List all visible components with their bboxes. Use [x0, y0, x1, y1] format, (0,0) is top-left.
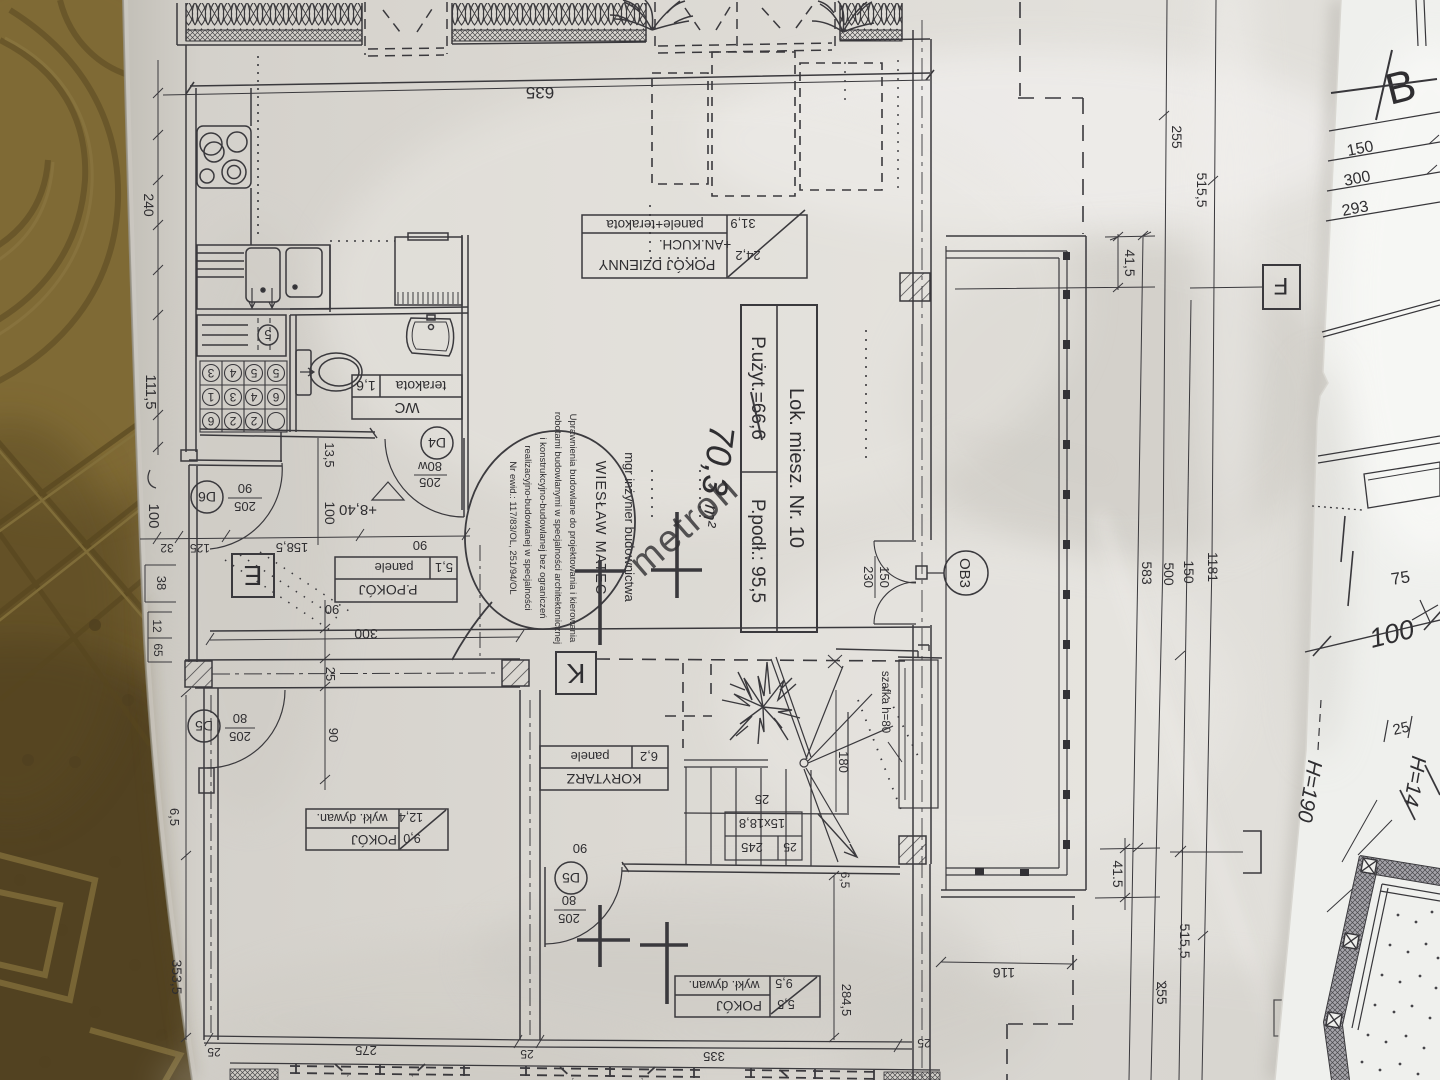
svg-text:111,5: 111,5 — [142, 374, 159, 409]
svg-text:9,0: 9,0 — [403, 831, 420, 845]
svg-text:583: 583 — [1139, 561, 1155, 585]
svg-text:terakota: terakota — [395, 378, 446, 394]
svg-text:90: 90 — [573, 841, 587, 856]
svg-text:Lok. miesz. Nr. 10: Lok. miesz. Nr. 10 — [785, 388, 807, 548]
svg-text:D5: D5 — [562, 870, 580, 886]
svg-text:K: K — [566, 658, 585, 689]
svg-text:5,1: 5,1 — [435, 560, 453, 575]
svg-text:515,5: 515,5 — [1194, 172, 1210, 207]
svg-text:300: 300 — [354, 626, 378, 642]
svg-text:275: 275 — [355, 1043, 377, 1058]
svg-text:245: 245 — [741, 840, 763, 855]
svg-text:90: 90 — [325, 602, 339, 617]
svg-text:15x18,8: 15x18,8 — [739, 816, 785, 831]
svg-text:25: 25 — [783, 840, 797, 854]
svg-text:WC: WC — [394, 399, 419, 416]
svg-text:180: 180 — [836, 751, 851, 773]
svg-text:32: 32 — [160, 541, 174, 555]
svg-text:116: 116 — [993, 965, 1016, 981]
svg-text:255: 255 — [1169, 125, 1185, 149]
svg-text:9,5: 9,5 — [775, 976, 792, 990]
svg-text:31,9: 31,9 — [730, 216, 755, 231]
svg-text:szafka h=80: szafka h=80 — [879, 671, 891, 733]
svg-text:6: 6 — [272, 390, 279, 404]
svg-text:25: 25 — [207, 1045, 221, 1059]
svg-text:240: 240 — [141, 193, 157, 217]
svg-text:230: 230 — [861, 566, 876, 588]
svg-text:158,5: 158,5 — [276, 540, 309, 555]
svg-text:635: 635 — [526, 83, 554, 102]
svg-text:41,5: 41,5 — [1122, 249, 1138, 276]
svg-text:3: 3 — [207, 366, 214, 380]
svg-text:12,4: 12,4 — [399, 810, 423, 824]
svg-text:6,5: 6,5 — [838, 872, 852, 889]
svg-text:E: E — [244, 560, 263, 591]
svg-text:90: 90 — [238, 481, 252, 496]
svg-text:500: 500 — [1161, 562, 1177, 586]
svg-text:80: 80 — [233, 711, 247, 726]
svg-text:Uprawnienia budowlane do proje: Uprawnienia budowlane do projektowania i… — [567, 414, 578, 643]
svg-text:POKÓJ: POKÓJ — [716, 998, 762, 1013]
svg-text:P.podł.: 95,5: P.podł.: 95,5 — [747, 499, 768, 603]
svg-text:255: 255 — [1154, 981, 1170, 1005]
svg-text:6,5: 6,5 — [167, 808, 182, 826]
svg-text:5,5: 5,5 — [777, 997, 794, 1011]
svg-text:90: 90 — [413, 538, 427, 553]
svg-text:wykł. dywan.: wykł. dywan. — [317, 811, 389, 825]
svg-text:D4: D4 — [428, 435, 446, 451]
svg-text:25: 25 — [755, 792, 769, 807]
svg-text:205: 205 — [558, 911, 580, 926]
svg-text:panele+terakota: panele+terakota — [606, 217, 704, 232]
svg-text:3: 3 — [229, 390, 236, 404]
svg-text:OB3: OB3 — [956, 558, 973, 588]
svg-text:5: 5 — [272, 366, 279, 380]
svg-text:i konstrukcyjno-budowlanej bez: i konstrukcyjno-budowlanej bez ogranicze… — [537, 437, 548, 618]
svg-text:5: 5 — [250, 366, 257, 380]
svg-text:2: 2 — [250, 414, 257, 428]
svg-text:38: 38 — [154, 576, 169, 590]
svg-text:6: 6 — [207, 414, 214, 428]
svg-text:4: 4 — [250, 390, 257, 404]
svg-text:515,5: 515,5 — [1177, 923, 1193, 958]
svg-text:90: 90 — [326, 728, 341, 742]
svg-text:D6: D6 — [198, 489, 216, 505]
svg-text:1181: 1181 — [1205, 552, 1221, 582]
svg-text:80w: 80w — [417, 459, 441, 474]
svg-text:205: 205 — [234, 499, 256, 514]
svg-text:F: F — [1274, 272, 1289, 299]
svg-text:24,2: 24,2 — [735, 248, 760, 263]
svg-text:100: 100 — [145, 503, 162, 528]
svg-text:205: 205 — [419, 475, 441, 490]
svg-text:125: 125 — [190, 541, 210, 555]
svg-text:13,5: 13,5 — [322, 442, 337, 467]
svg-text:panele: panele — [570, 749, 609, 764]
svg-text:25: 25 — [323, 667, 338, 681]
svg-text:realizacyjno-budowlanej w spec: realizacyjno-budowlanej w specjalności — [522, 445, 533, 610]
svg-text:25: 25 — [917, 1036, 931, 1050]
svg-text:65: 65 — [151, 643, 165, 657]
svg-text:353,5: 353,5 — [169, 959, 185, 994]
svg-text:150: 150 — [1181, 560, 1197, 584]
svg-text:robotami budowlanymi w specjal: robotami budowlanymi w specjalności arch… — [552, 412, 563, 644]
svg-text:41.5: 41.5 — [1110, 860, 1126, 887]
svg-text:205: 205 — [229, 729, 251, 744]
svg-text:335: 335 — [703, 1049, 725, 1064]
svg-text:2: 2 — [229, 414, 236, 428]
svg-text:+8,40: +8,40 — [339, 501, 377, 518]
svg-text:KORYTARZ: KORYTARZ — [566, 771, 641, 787]
svg-text:80: 80 — [562, 893, 576, 908]
svg-text:6,2: 6,2 — [640, 749, 658, 764]
svg-text:12: 12 — [150, 619, 164, 633]
svg-text:panele: panele — [374, 560, 413, 575]
svg-text:100: 100 — [322, 501, 338, 525]
svg-text:+AN.KUCH.: +AN.KUCH. — [659, 237, 731, 252]
svg-text:150: 150 — [877, 566, 892, 588]
svg-text:5: 5 — [264, 327, 271, 342]
svg-text:1: 1 — [207, 390, 214, 404]
svg-text:4: 4 — [229, 366, 236, 380]
svg-text:POKÓJ DZIENNY: POKÓJ DZIENNY — [598, 256, 715, 273]
svg-text:284,5: 284,5 — [839, 984, 854, 1017]
svg-text:POKÓJ: POKÓJ — [351, 832, 397, 847]
svg-text:P.POKÓJ: P.POKÓJ — [359, 582, 418, 598]
svg-text:Nr ewid.: 117/83/OL, 251/94/O: Nr ewid.: 117/83/OL, 251/94/OL — [507, 461, 518, 594]
svg-text:wykł. dywan.: wykł. dywan. — [689, 978, 761, 992]
svg-text:25: 25 — [520, 1047, 534, 1061]
svg-text:75: 75 — [1390, 567, 1412, 589]
svg-text:1,6: 1,6 — [356, 378, 376, 394]
